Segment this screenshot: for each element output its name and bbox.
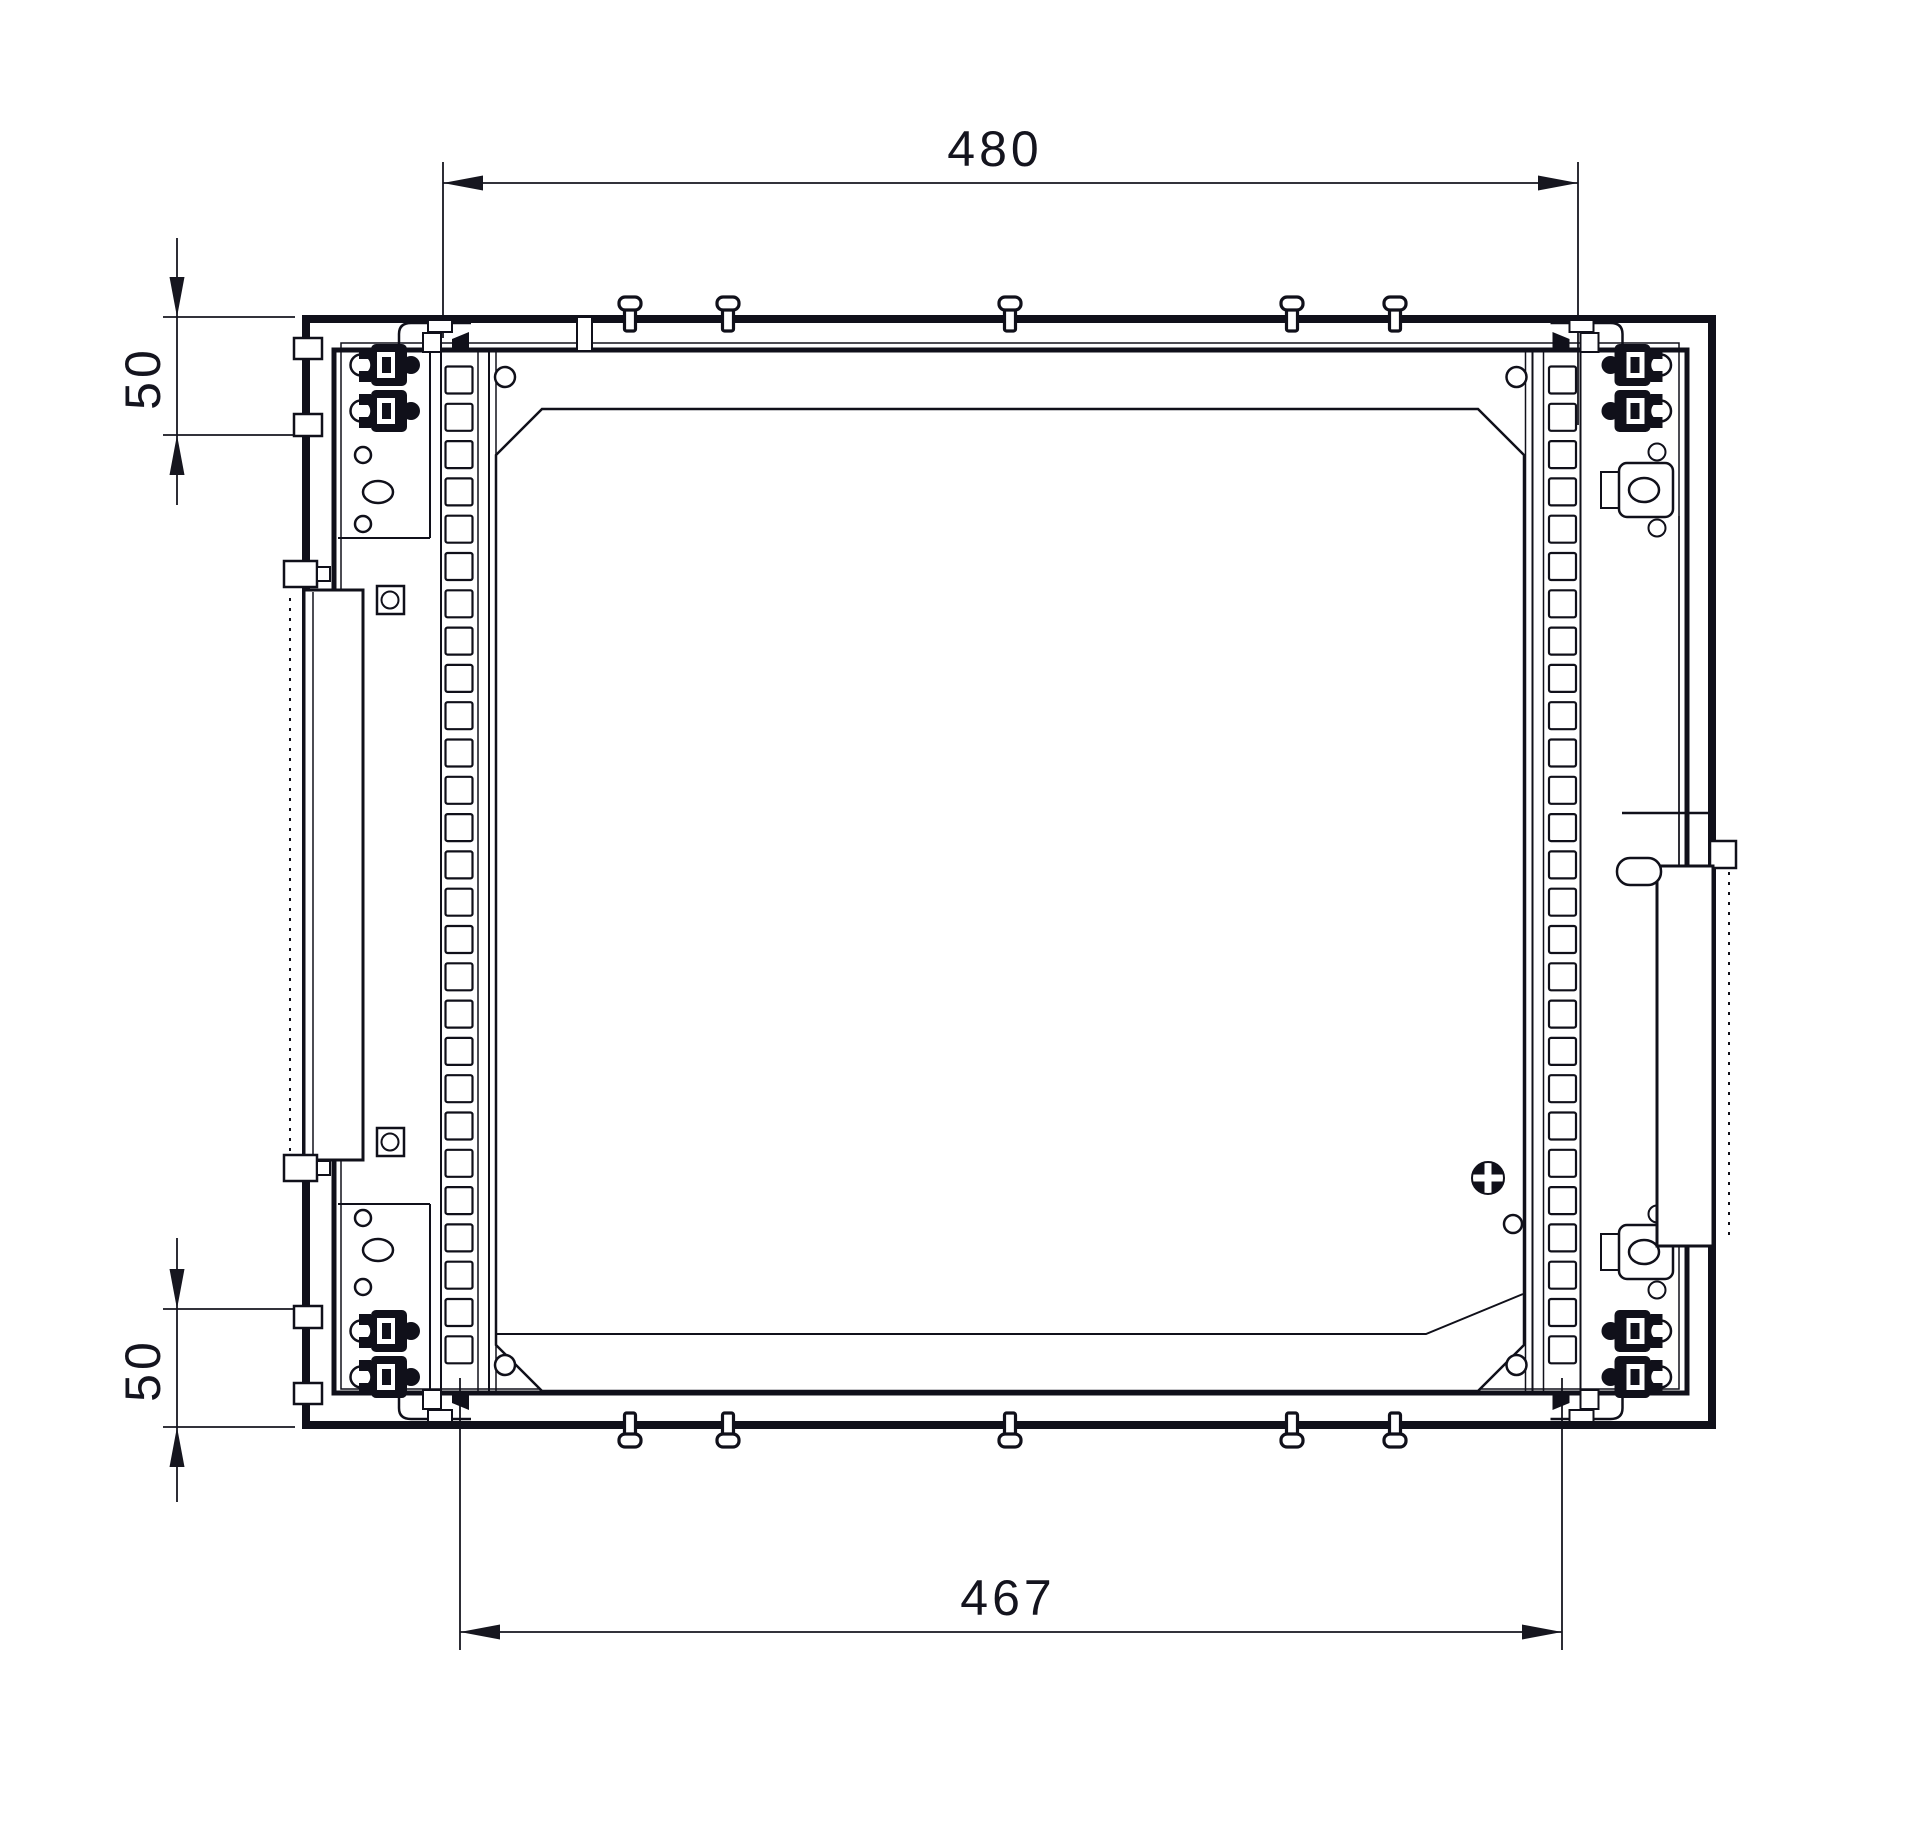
rack-square-hole (1549, 590, 1576, 617)
top-rail-seam (577, 317, 592, 351)
right-mounting-bar (1617, 841, 1736, 1246)
edge-screw-top (1384, 297, 1406, 331)
arrowhead (170, 1427, 185, 1467)
rack-square-hole (1549, 740, 1576, 767)
rack-square-hole (446, 628, 473, 655)
dimension-top-width-480: 480 (443, 121, 1578, 425)
rack-square-hole (446, 441, 473, 468)
rack-square-hole (446, 1150, 473, 1177)
rack-square-hole (446, 1336, 473, 1363)
rack-square-hole (446, 590, 473, 617)
rack-square-hole (446, 1187, 473, 1214)
rack-square-hole (446, 553, 473, 580)
rack-square-hole (446, 702, 473, 729)
arrowhead (170, 435, 185, 475)
rack-square-hole (1549, 963, 1576, 990)
rack-frame-top-view-drawing: 480 467 50 50 (0, 0, 1916, 1844)
panel-outline (496, 409, 1524, 1391)
rack-square-hole (446, 367, 473, 394)
dimension-label-480: 480 (947, 121, 1042, 177)
pilot-hole (1504, 1215, 1522, 1233)
rack-square-hole (446, 1113, 473, 1140)
rack-square-hole (446, 478, 473, 505)
edge-screw-bottom (619, 1413, 641, 1447)
latch-right-upper (1601, 444, 1673, 537)
arrowhead (1538, 176, 1578, 191)
rack-square-hole (446, 1224, 473, 1251)
edge-screw-top (717, 297, 739, 331)
edge-screw-bottom (717, 1413, 739, 1447)
rack-square-hole (1549, 1187, 1576, 1214)
dimension-label-467: 467 (960, 1570, 1055, 1626)
arrowhead (443, 176, 483, 191)
edge-screw-top (999, 297, 1021, 331)
rack-square-hole (1549, 367, 1576, 394)
clamp-block (284, 1155, 317, 1181)
rack-square-hole (1549, 777, 1576, 804)
rack-square-hole (1549, 1113, 1576, 1140)
rack-square-hole (446, 851, 473, 878)
arrowhead (170, 277, 185, 317)
corner-hardware-bottom-left (351, 1310, 516, 1422)
technical-drawing-page: 480 467 50 50 (0, 0, 1916, 1844)
rack-square-hole (446, 665, 473, 692)
dimension-bottom-offset-50: 50 (115, 1238, 300, 1502)
edge-screw-top (1281, 297, 1303, 331)
left-mounting-bar (284, 561, 363, 1181)
rack-square-hole (446, 1262, 473, 1289)
rack-square-hole (1549, 441, 1576, 468)
back-panel (496, 317, 1710, 1391)
clamp-block (284, 561, 317, 587)
rack-square-hole (1549, 404, 1576, 431)
rack-square-hole (1549, 889, 1576, 916)
rack-square-hole (1549, 814, 1576, 841)
rack-square-hole (1549, 665, 1576, 692)
corner-hardware-top-left (351, 320, 516, 432)
corner-hardware-bottom-right (1507, 1310, 1672, 1422)
rack-square-hole (1549, 1038, 1576, 1065)
rack-square-hole (446, 963, 473, 990)
rack-square-hole (446, 1299, 473, 1326)
rack-square-hole (1549, 1299, 1576, 1326)
rack-square-hole (1549, 1001, 1576, 1028)
arrowhead (460, 1625, 500, 1640)
dimension-label-50-bottom: 50 (115, 1338, 171, 1402)
rack-square-hole (1549, 516, 1576, 543)
rack-square-hole (446, 404, 473, 431)
rack-square-hole (1549, 1262, 1576, 1289)
rack-square-hole (1549, 851, 1576, 878)
rack-square-hole (1549, 628, 1576, 655)
rounded-tab (1617, 858, 1661, 885)
side-tab (1710, 841, 1736, 868)
rack-square-hole (446, 516, 473, 543)
edge-screw-bottom (999, 1413, 1021, 1447)
rack-square-hole (446, 1038, 473, 1065)
rack-square-hole (1549, 1336, 1576, 1363)
rack-square-hole (1549, 553, 1576, 580)
rack-square-hole (1549, 478, 1576, 505)
rack-square-hole (1549, 702, 1576, 729)
rack-square-hole (1549, 1150, 1576, 1177)
rack-square-hole (446, 1075, 473, 1102)
rack-square-hole (1549, 1224, 1576, 1251)
rack-square-hole (446, 889, 473, 916)
corner-hardware-top-right (1507, 320, 1672, 432)
edge-screw-top (619, 297, 641, 331)
arrowhead (1522, 1625, 1562, 1640)
rack-square-hole (1549, 926, 1576, 953)
rack-square-hole (446, 777, 473, 804)
rack-square-hole (446, 1001, 473, 1028)
latch-left-upper (377, 586, 404, 614)
rack-square-hole (446, 814, 473, 841)
dimension-label-50-top: 50 (115, 346, 171, 410)
dimension-top-offset-50: 50 (115, 238, 300, 505)
latch-left-lower (377, 1128, 404, 1156)
rack-square-hole (446, 926, 473, 953)
rack-square-hole (446, 740, 473, 767)
edge-screw-bottom (1281, 1413, 1303, 1447)
rack-square-hole (1549, 1075, 1576, 1102)
arrowhead (170, 1269, 185, 1309)
edge-screw-bottom (1384, 1413, 1406, 1447)
